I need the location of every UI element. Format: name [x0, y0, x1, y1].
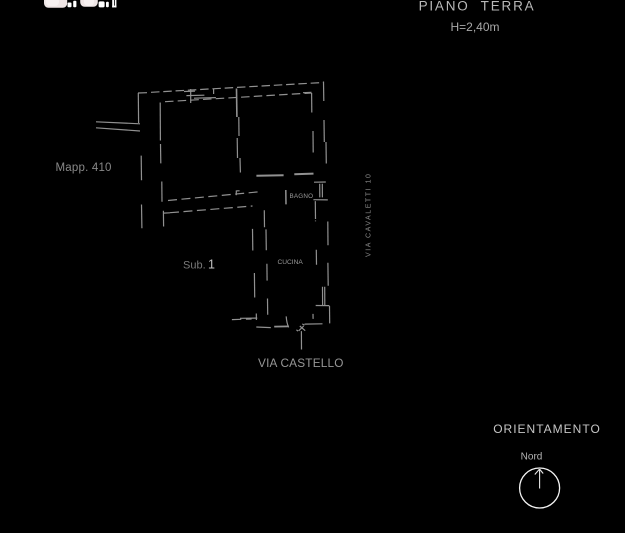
svg-text:Sub.: Sub.	[183, 259, 206, 271]
svg-text:CUCINA: CUCINA	[278, 259, 304, 266]
svg-text:ORIENTAMENTO: ORIENTAMENTO	[493, 422, 601, 436]
svg-text:VIA CAVALETTI 10: VIA CAVALETTI 10	[366, 173, 373, 257]
svg-text:Nord: Nord	[521, 452, 543, 463]
svg-text:1: 1	[208, 258, 215, 272]
svg-text:Mapp. 410: Mapp. 410	[56, 162, 112, 174]
svg-text:PIANO TERRA: PIANO TERRA	[419, 0, 536, 13]
svg-text:VIA CASTELLO: VIA CASTELLO	[258, 356, 344, 370]
svg-text:BAGNO: BAGNO	[290, 193, 314, 200]
svg-text:H=2,40m: H=2,40m	[450, 20, 499, 34]
